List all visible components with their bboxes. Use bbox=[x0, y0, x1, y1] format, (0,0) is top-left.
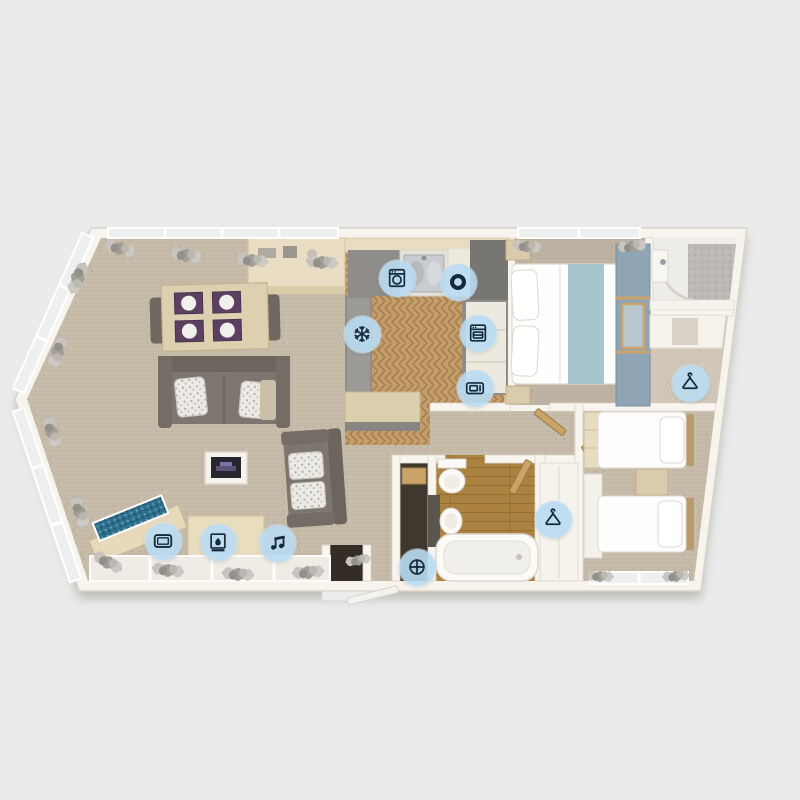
bathtub bbox=[436, 534, 538, 581]
mirror bbox=[622, 304, 644, 348]
shower-tiles bbox=[688, 244, 736, 306]
pillow bbox=[511, 325, 540, 376]
sofa-small bbox=[281, 428, 348, 528]
shower-point-icon[interactable] bbox=[399, 549, 436, 586]
tv-icon[interactable] bbox=[145, 523, 182, 560]
bedside-cabinet bbox=[636, 469, 668, 495]
pillow bbox=[658, 501, 682, 547]
bedside-table bbox=[506, 386, 530, 404]
ensuite-shower-room bbox=[650, 244, 736, 310]
microwave-icon[interactable] bbox=[457, 370, 494, 407]
kitchen-island bbox=[345, 392, 420, 426]
bed-runner bbox=[568, 264, 604, 384]
floorplan-canvas bbox=[0, 0, 800, 800]
twin-bed-2 bbox=[598, 496, 694, 552]
cupboard-shelf bbox=[402, 468, 426, 484]
window-living-bottom-sill bbox=[90, 556, 330, 581]
wall-fireplace bbox=[205, 452, 247, 484]
oven-unit bbox=[470, 240, 508, 300]
dishwasher-icon[interactable] bbox=[460, 315, 497, 352]
corridor-floor bbox=[430, 411, 583, 462]
twin-bed-1 bbox=[598, 412, 694, 468]
cushion bbox=[290, 481, 326, 509]
ensuite-cabinet bbox=[652, 250, 668, 282]
cushion bbox=[174, 377, 208, 418]
wardrobe-hall-icon[interactable] bbox=[535, 501, 572, 538]
master-bedroom bbox=[506, 240, 650, 406]
sofa-large bbox=[158, 356, 290, 428]
oven-hob-icon[interactable] bbox=[440, 264, 477, 301]
fireplace-icon[interactable] bbox=[200, 524, 237, 561]
washing-machine-icon[interactable] bbox=[379, 260, 416, 297]
dining-table bbox=[149, 282, 281, 351]
audio-system-icon[interactable] bbox=[259, 525, 296, 562]
pillow bbox=[511, 269, 540, 320]
fridge-freezer-icon[interactable] bbox=[344, 316, 381, 353]
wardrobe-master-icon[interactable] bbox=[672, 365, 709, 402]
floorplan bbox=[0, 0, 800, 800]
double-bed bbox=[511, 264, 626, 384]
master-wardrobes bbox=[616, 244, 650, 406]
toilet-cistern bbox=[438, 459, 466, 468]
basin-counter bbox=[428, 495, 440, 547]
dressing-area bbox=[650, 315, 726, 348]
pillow bbox=[660, 417, 684, 463]
cushion bbox=[288, 451, 324, 479]
